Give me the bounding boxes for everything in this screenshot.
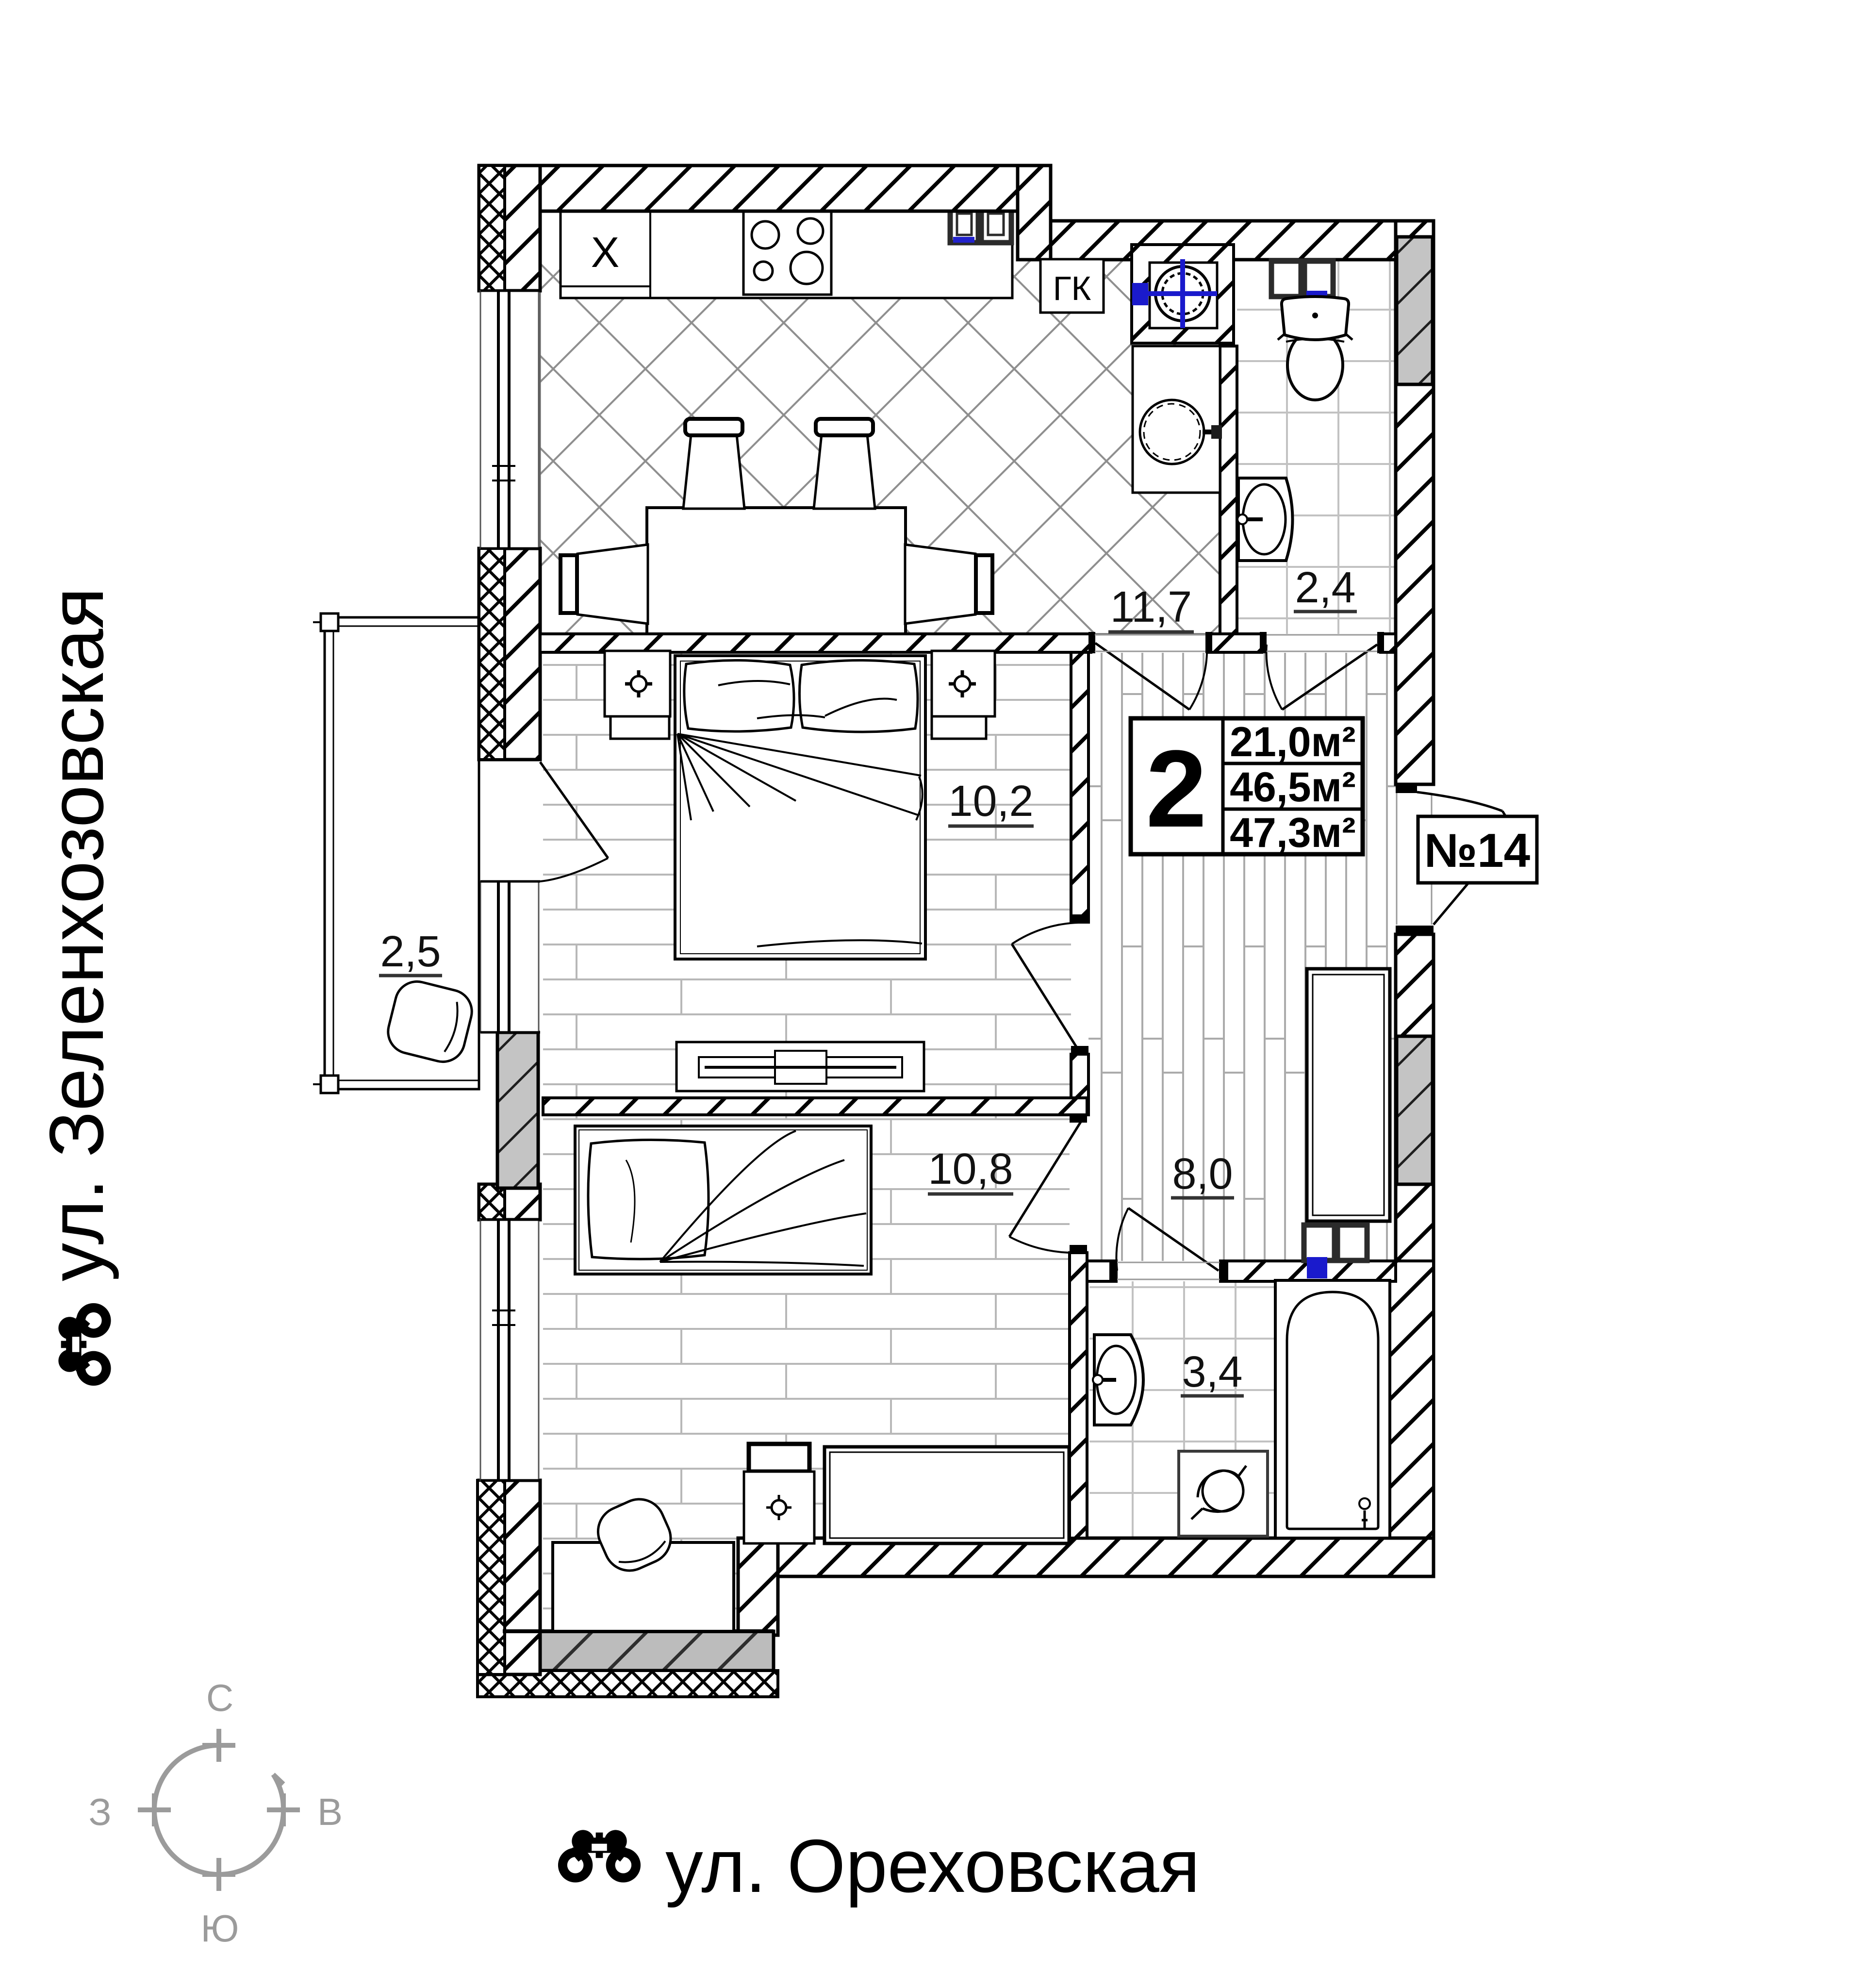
svg-text:С: С [206,1676,233,1719]
svg-text:47,3м²: 47,3м² [1230,810,1356,856]
svg-text:ул. Ореховская: ул. Ореховская [665,1824,1200,1908]
svg-text:21,0м²: 21,0м² [1230,719,1356,765]
svg-text:46,5м²: 46,5м² [1230,764,1356,811]
svg-text:10,8: 10,8 [928,1145,1013,1193]
svg-text:8,0: 8,0 [1172,1150,1233,1198]
svg-text:В: В [317,1790,343,1833]
svg-text:ул. Зеленхозовская: ул. Зеленхозовская [34,587,119,1281]
svg-text:ГК: ГК [1053,269,1091,307]
svg-text:№14: №14 [1424,824,1530,877]
svg-text:10,2: 10,2 [948,777,1033,826]
svg-text:З: З [88,1790,111,1833]
svg-text:2: 2 [1146,727,1207,850]
svg-text:11,7: 11,7 [1110,583,1192,631]
svg-text:2,5: 2,5 [380,928,441,976]
svg-text:Ю: Ю [201,1907,239,1950]
svg-text:3,4: 3,4 [1182,1348,1242,1396]
svg-text:2,4: 2,4 [1295,563,1355,612]
svg-text:X: X [591,228,620,276]
